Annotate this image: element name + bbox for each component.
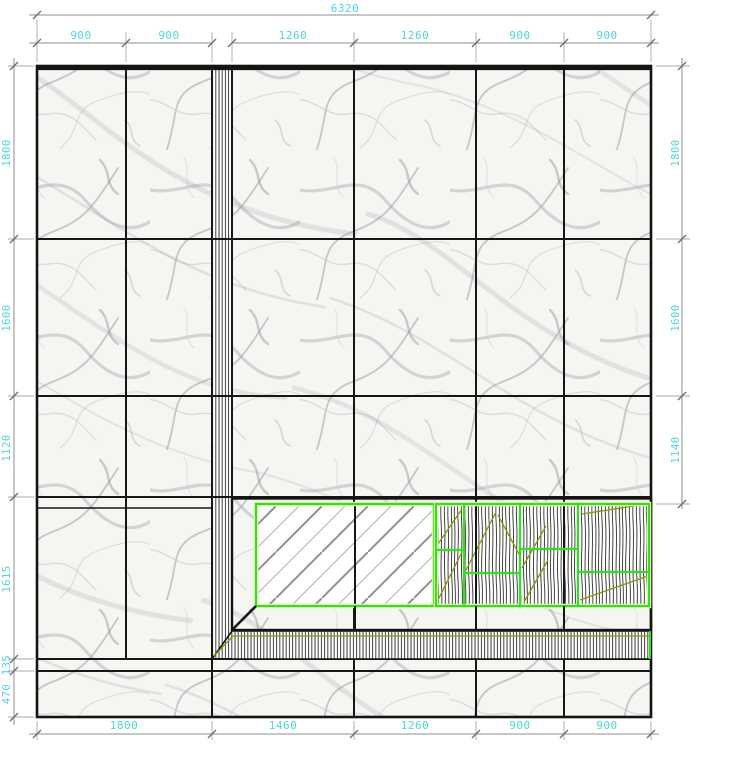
wood-grain-hatch [437, 505, 648, 605]
dim-right-seg-2: 1140 [670, 436, 682, 463]
top-dimensions: 6320 900 900 1260 1260 900 900 [29, 2, 659, 62]
wall-marble-field [37, 66, 651, 717]
dim-left-seg-5: 470 [1, 684, 13, 704]
dim-top-seg-0: 900 [70, 29, 91, 42]
dim-bottom-seg-0: 1800 [110, 719, 139, 732]
dim-bottom-seg-1: 1460 [269, 719, 298, 732]
dim-bottom-seg-3: 900 [509, 719, 530, 732]
right-dimensions: 1800 1600 1140 [656, 58, 690, 509]
dim-top-seg-3: 1260 [401, 29, 430, 42]
dim-left-seg-4: 135 [1, 655, 13, 675]
dim-left-seg-3: 1615 [1, 565, 13, 592]
dim-right-seg-1: 1600 [670, 304, 682, 331]
dim-left-seg-1: 1600 [1, 304, 13, 331]
mirror-diagonal-hatch [258, 506, 432, 604]
dim-bottom-seg-2: 1260 [401, 719, 430, 732]
dim-top-seg-2: 1260 [279, 29, 308, 42]
dim-top-overall: 6320 [331, 2, 360, 15]
dim-top-seg-5: 900 [596, 29, 617, 42]
bottom-dimensions: 1800 1460 1260 900 900 [29, 719, 659, 740]
elevation-canvas: 6320 900 900 1260 1260 900 900 1800 1600… [0, 0, 741, 759]
mirror-panel [256, 504, 434, 606]
left-dimensions: 1800 1600 1120 1615 135 470 [1, 58, 34, 725]
dim-top-seg-4: 900 [509, 29, 530, 42]
base-trim-horizontal-hatch [212, 631, 651, 659]
dim-top-seg-1: 900 [158, 29, 179, 42]
corner-trim-vertical-hatch [212, 66, 232, 659]
dim-right-seg-0: 1800 [670, 139, 682, 166]
dim-bottom-seg-4: 900 [596, 719, 617, 732]
elevation-drawing: 6320 900 900 1260 1260 900 900 1800 1600… [0, 0, 741, 759]
dim-left-seg-0: 1800 [1, 139, 13, 166]
dim-left-seg-2: 1120 [1, 434, 13, 461]
wood-grain-panels [436, 504, 649, 606]
